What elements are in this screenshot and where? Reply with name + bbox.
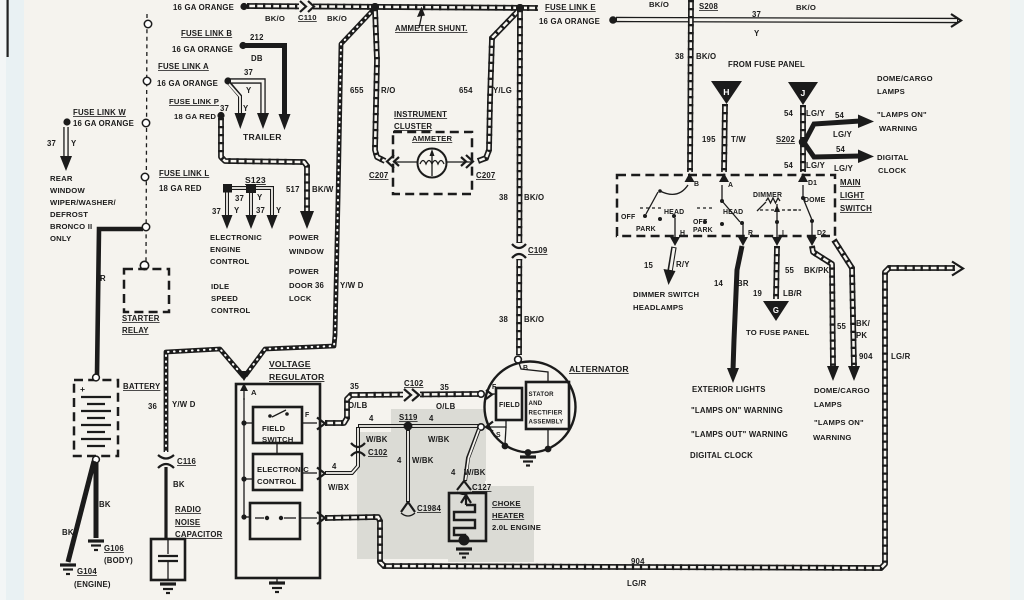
svg-text:WINDOW: WINDOW bbox=[289, 247, 324, 256]
svg-text:37: 37 bbox=[47, 139, 56, 148]
svg-text:FIELD: FIELD bbox=[262, 424, 285, 433]
svg-text:4: 4 bbox=[369, 414, 374, 423]
svg-text:BK/O: BK/O bbox=[796, 3, 816, 12]
svg-text:AND: AND bbox=[529, 400, 543, 407]
svg-text:F: F bbox=[492, 384, 496, 391]
svg-text:LG/R: LG/R bbox=[627, 579, 647, 588]
svg-text:FUSE LINK L: FUSE LINK L bbox=[159, 169, 209, 178]
svg-text:LG/Y: LG/Y bbox=[806, 161, 826, 170]
svg-text:LG/Y: LG/Y bbox=[833, 130, 853, 139]
svg-text:TRAILER: TRAILER bbox=[243, 132, 282, 142]
svg-text:DIMMER SWITCH: DIMMER SWITCH bbox=[633, 290, 699, 299]
svg-text:CAPACITOR: CAPACITOR bbox=[175, 530, 223, 539]
svg-text:C110: C110 bbox=[298, 13, 317, 22]
svg-text:37: 37 bbox=[220, 104, 229, 113]
svg-text:655: 655 bbox=[350, 86, 364, 95]
svg-text:B: B bbox=[694, 181, 699, 188]
svg-text:FUSE LINK A: FUSE LINK A bbox=[158, 62, 209, 71]
svg-text:BK/W: BK/W bbox=[312, 185, 334, 194]
svg-text:CLOCK: CLOCK bbox=[878, 166, 907, 175]
svg-text:54: 54 bbox=[836, 145, 846, 154]
svg-text:PK: PK bbox=[856, 331, 867, 340]
svg-text:36: 36 bbox=[315, 281, 325, 290]
svg-text:FIELD: FIELD bbox=[499, 402, 520, 409]
svg-text:W/BK: W/BK bbox=[464, 468, 486, 477]
svg-text:FROM FUSE PANEL: FROM FUSE PANEL bbox=[728, 60, 805, 69]
svg-text:212: 212 bbox=[250, 33, 264, 42]
svg-text:2.0L ENGINE: 2.0L ENGINE bbox=[492, 523, 541, 532]
svg-text:DIGITAL CLOCK: DIGITAL CLOCK bbox=[690, 451, 753, 460]
svg-text:W/BK: W/BK bbox=[412, 456, 434, 465]
svg-text:BK/O: BK/O bbox=[649, 0, 669, 9]
svg-text:BK/O: BK/O bbox=[696, 52, 716, 61]
svg-text:37: 37 bbox=[256, 206, 265, 215]
svg-text:C102: C102 bbox=[404, 379, 424, 388]
svg-text:R/Y: R/Y bbox=[676, 260, 690, 269]
svg-text:BK: BK bbox=[62, 528, 74, 537]
svg-text:LAMPS: LAMPS bbox=[814, 400, 842, 409]
svg-text:C102: C102 bbox=[368, 448, 388, 457]
svg-text:LB/R: LB/R bbox=[783, 289, 802, 298]
svg-text:4: 4 bbox=[429, 414, 434, 423]
svg-text:G106: G106 bbox=[104, 544, 124, 553]
svg-text:C207: C207 bbox=[369, 171, 388, 180]
svg-text:F: F bbox=[305, 412, 309, 419]
svg-text:G: G bbox=[773, 306, 779, 315]
svg-text:38: 38 bbox=[675, 52, 685, 61]
svg-text:T/W: T/W bbox=[731, 135, 746, 144]
svg-text:BK/O: BK/O bbox=[524, 315, 544, 324]
svg-text:FUSE LINK E: FUSE LINK E bbox=[545, 3, 596, 12]
svg-text:REAR: REAR bbox=[50, 174, 73, 183]
svg-text:A: A bbox=[251, 388, 257, 397]
svg-text:S202: S202 bbox=[776, 135, 795, 144]
svg-text:DOOR: DOOR bbox=[289, 281, 313, 290]
svg-text:16 GA ORANGE: 16 GA ORANGE bbox=[73, 119, 134, 128]
svg-text:14: 14 bbox=[714, 279, 724, 288]
svg-text:Y/LG: Y/LG bbox=[493, 86, 512, 95]
svg-text:W/BX: W/BX bbox=[328, 483, 350, 492]
svg-text:DEFROST: DEFROST bbox=[50, 210, 88, 219]
svg-text:15: 15 bbox=[644, 261, 654, 270]
svg-text:18 GA RED: 18 GA RED bbox=[159, 184, 202, 193]
svg-text:S123: S123 bbox=[245, 175, 266, 185]
svg-text:CONTROL: CONTROL bbox=[211, 306, 251, 315]
svg-text:DOME: DOME bbox=[804, 197, 826, 204]
svg-text:BR: BR bbox=[737, 279, 749, 288]
svg-text:C116: C116 bbox=[177, 457, 196, 466]
svg-text:H: H bbox=[680, 230, 685, 237]
svg-text:J: J bbox=[801, 88, 806, 98]
svg-text:AMMETER SHUNT.: AMMETER SHUNT. bbox=[395, 24, 468, 33]
svg-text:BK: BK bbox=[99, 500, 111, 509]
svg-text:195: 195 bbox=[702, 135, 716, 144]
svg-text:LAMPS: LAMPS bbox=[877, 87, 905, 96]
svg-text:"LAMPS OUT" WARNING: "LAMPS OUT" WARNING bbox=[691, 430, 788, 439]
svg-text:BK: BK bbox=[173, 480, 185, 489]
svg-text:BK/O: BK/O bbox=[327, 14, 347, 23]
svg-text:ENGINE: ENGINE bbox=[210, 245, 241, 254]
svg-text:NOISE: NOISE bbox=[175, 518, 200, 527]
svg-text:A: A bbox=[728, 182, 733, 189]
svg-text:D2: D2 bbox=[817, 230, 826, 237]
svg-text:Y: Y bbox=[243, 104, 249, 113]
svg-text:SWITCH: SWITCH bbox=[840, 204, 872, 213]
svg-text:517: 517 bbox=[286, 185, 300, 194]
svg-text:DB: DB bbox=[251, 54, 263, 63]
svg-text:CONTROL: CONTROL bbox=[257, 477, 297, 486]
svg-text:54: 54 bbox=[784, 161, 794, 170]
svg-text:37: 37 bbox=[244, 68, 253, 77]
svg-text:AMMETER: AMMETER bbox=[412, 134, 453, 143]
svg-text:SWITCH: SWITCH bbox=[262, 435, 294, 444]
svg-text:POWER: POWER bbox=[289, 267, 319, 276]
svg-text:654: 654 bbox=[459, 86, 473, 95]
svg-text:CLUSTER: CLUSTER bbox=[394, 122, 432, 131]
svg-text:DOME/CARGO: DOME/CARGO bbox=[877, 74, 933, 83]
svg-text:DOME/CARGO: DOME/CARGO bbox=[814, 386, 870, 395]
svg-text:BK/: BK/ bbox=[856, 319, 871, 328]
svg-text:IDLE: IDLE bbox=[211, 282, 229, 291]
svg-text:4: 4 bbox=[332, 462, 337, 471]
svg-text:38: 38 bbox=[499, 315, 509, 324]
svg-text:PARK: PARK bbox=[693, 227, 713, 234]
svg-text:Y: Y bbox=[754, 29, 760, 38]
svg-text:LOCK: LOCK bbox=[289, 294, 312, 303]
svg-text:"LAMPS ON": "LAMPS ON" bbox=[877, 110, 927, 119]
svg-text:18 GA RED: 18 GA RED bbox=[174, 112, 216, 121]
svg-text:RADIO: RADIO bbox=[175, 505, 201, 514]
svg-text:WARNING: WARNING bbox=[813, 433, 852, 442]
svg-text:POWER: POWER bbox=[289, 233, 319, 242]
svg-text:LIGHT: LIGHT bbox=[840, 191, 864, 200]
svg-text:ONLY: ONLY bbox=[50, 234, 71, 243]
svg-text:S119: S119 bbox=[399, 413, 418, 422]
svg-text:Y: Y bbox=[246, 86, 252, 95]
svg-text:OFF: OFF bbox=[621, 214, 635, 221]
svg-text:"LAMPS ON": "LAMPS ON" bbox=[814, 418, 864, 427]
svg-text:16 GA ORANGE: 16 GA ORANGE bbox=[539, 17, 600, 26]
svg-text:Y: Y bbox=[234, 206, 240, 215]
svg-text:35: 35 bbox=[350, 382, 360, 391]
svg-text:C109: C109 bbox=[528, 246, 548, 255]
svg-text:16 GA ORANGE: 16 GA ORANGE bbox=[173, 3, 234, 12]
svg-text:O/LB: O/LB bbox=[348, 401, 368, 410]
svg-text:PARK: PARK bbox=[636, 226, 656, 233]
svg-text:ALTERNATOR: ALTERNATOR bbox=[569, 364, 629, 374]
svg-text:Y: Y bbox=[71, 139, 77, 148]
svg-text:EXTERIOR LIGHTS: EXTERIOR LIGHTS bbox=[692, 385, 766, 394]
svg-text:BK/O: BK/O bbox=[265, 14, 285, 23]
svg-text:H: H bbox=[723, 87, 729, 97]
svg-text:WARNING: WARNING bbox=[879, 124, 918, 133]
svg-text:STATOR: STATOR bbox=[529, 391, 555, 398]
svg-text:37: 37 bbox=[752, 10, 761, 19]
svg-text:Y: Y bbox=[276, 206, 282, 215]
svg-text:37: 37 bbox=[212, 207, 221, 216]
svg-text:16 GA ORANGE: 16 GA ORANGE bbox=[157, 79, 218, 88]
svg-text:HEADLAMPS: HEADLAMPS bbox=[633, 303, 684, 312]
svg-text:WIPER/WASHER/: WIPER/WASHER/ bbox=[50, 198, 116, 207]
svg-text:Y/W D: Y/W D bbox=[172, 400, 196, 409]
svg-text:FUSE LINK B: FUSE LINK B bbox=[181, 29, 232, 38]
svg-text:ASSEMBLY: ASSEMBLY bbox=[529, 419, 564, 426]
svg-text:CHOKE: CHOKE bbox=[492, 499, 521, 508]
svg-text:B: B bbox=[523, 365, 528, 372]
svg-text:37: 37 bbox=[235, 194, 244, 203]
svg-text:FUSE LINK P: FUSE LINK P bbox=[169, 97, 219, 106]
svg-text:LG/Y: LG/Y bbox=[834, 164, 854, 173]
svg-text:DIGITAL: DIGITAL bbox=[877, 153, 909, 162]
svg-text:ELECTRONIC: ELECTRONIC bbox=[210, 233, 262, 242]
svg-text:I: I bbox=[782, 230, 784, 237]
svg-text:RECTIFIER: RECTIFIER bbox=[529, 410, 563, 417]
svg-text:904: 904 bbox=[859, 352, 873, 361]
svg-text:904: 904 bbox=[631, 557, 645, 566]
svg-text:54: 54 bbox=[784, 109, 794, 118]
svg-text:C1984: C1984 bbox=[417, 504, 441, 513]
svg-text:MAIN: MAIN bbox=[840, 178, 861, 187]
svg-text:W/BK: W/BK bbox=[366, 435, 388, 444]
svg-text:36: 36 bbox=[148, 402, 158, 411]
svg-text:INSTRUMENT: INSTRUMENT bbox=[394, 110, 447, 119]
svg-text:55: 55 bbox=[837, 322, 847, 331]
svg-text:ELECTRONIC: ELECTRONIC bbox=[257, 465, 309, 474]
svg-text:HEAD: HEAD bbox=[723, 209, 743, 216]
svg-text:LG/R: LG/R bbox=[891, 352, 911, 361]
svg-text:REGULATOR: REGULATOR bbox=[269, 372, 325, 382]
svg-text:C127: C127 bbox=[472, 483, 491, 492]
svg-text:BATTERY: BATTERY bbox=[123, 382, 161, 391]
svg-text:HEATER: HEATER bbox=[492, 511, 524, 520]
svg-text:HEAD: HEAD bbox=[664, 209, 684, 216]
svg-text:BK/O: BK/O bbox=[524, 193, 544, 202]
svg-text:"LAMPS ON" WARNING: "LAMPS ON" WARNING bbox=[691, 406, 783, 415]
svg-text:BRONCO II: BRONCO II bbox=[50, 222, 92, 231]
svg-text:19: 19 bbox=[753, 289, 763, 298]
svg-text:R/O: R/O bbox=[381, 86, 395, 95]
svg-text:+: + bbox=[80, 384, 85, 394]
svg-text:Y: Y bbox=[257, 193, 263, 202]
svg-text:TO FUSE PANEL: TO FUSE PANEL bbox=[746, 328, 809, 337]
svg-text:R: R bbox=[748, 230, 753, 237]
svg-text:RELAY: RELAY bbox=[122, 326, 149, 335]
svg-text:54: 54 bbox=[835, 111, 845, 120]
svg-text:VOLTAGE: VOLTAGE bbox=[269, 359, 311, 369]
svg-text:O/LB: O/LB bbox=[436, 402, 456, 411]
svg-text:16 GA ORANGE: 16 GA ORANGE bbox=[172, 45, 233, 54]
svg-text:S208: S208 bbox=[699, 2, 718, 11]
svg-text:FUSE LINK W: FUSE LINK W bbox=[73, 108, 126, 117]
svg-text:WINDOW: WINDOW bbox=[50, 186, 85, 195]
svg-text:S: S bbox=[496, 432, 501, 439]
svg-text:Y/W D: Y/W D bbox=[340, 281, 364, 290]
svg-text:G104: G104 bbox=[77, 567, 97, 576]
svg-text:STARTER: STARTER bbox=[122, 314, 160, 323]
svg-text:CONTROL: CONTROL bbox=[210, 257, 250, 266]
svg-text:D1: D1 bbox=[808, 180, 817, 187]
svg-text:C207: C207 bbox=[476, 171, 495, 180]
svg-text:W/BK: W/BK bbox=[428, 435, 450, 444]
svg-text:OFF: OFF bbox=[693, 219, 707, 226]
svg-text:LG/Y: LG/Y bbox=[806, 109, 826, 118]
svg-text:4: 4 bbox=[397, 456, 402, 465]
svg-text:(ENGINE): (ENGINE) bbox=[74, 580, 111, 589]
svg-text:R: R bbox=[100, 274, 106, 283]
svg-text:SPEED: SPEED bbox=[211, 294, 238, 303]
svg-text:BK/PK: BK/PK bbox=[804, 266, 829, 275]
svg-text:35: 35 bbox=[440, 383, 450, 392]
svg-text:4: 4 bbox=[451, 468, 456, 477]
svg-text:55: 55 bbox=[785, 266, 795, 275]
svg-text:38: 38 bbox=[499, 193, 509, 202]
svg-text:(BODY): (BODY) bbox=[104, 556, 133, 565]
